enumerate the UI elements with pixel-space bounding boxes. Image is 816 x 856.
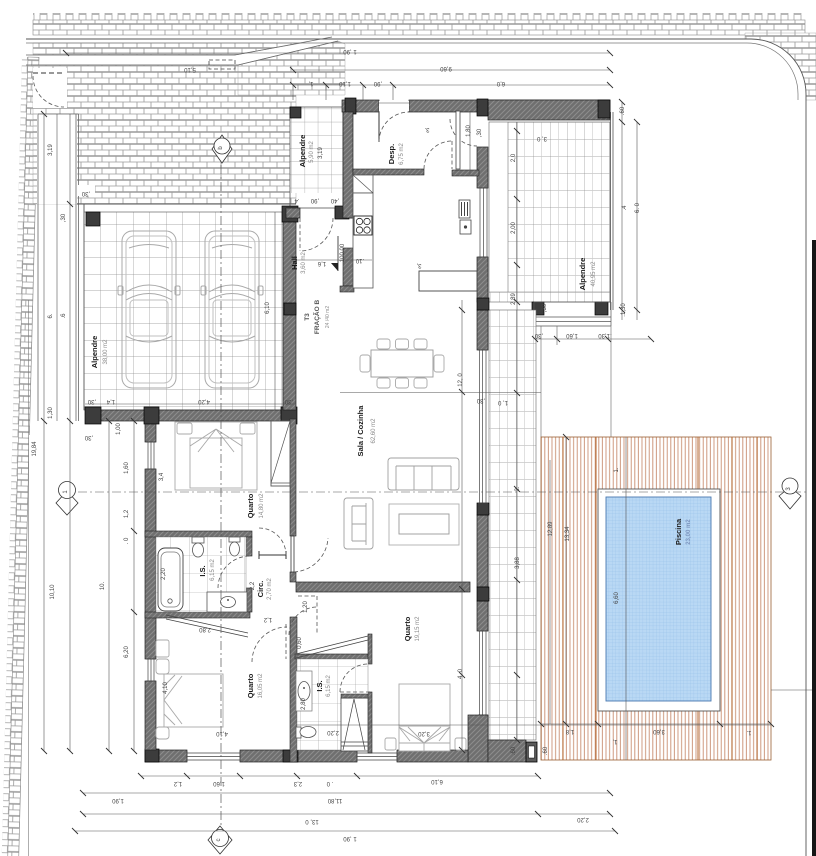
svg-text:1,10: 1,10 (339, 80, 351, 86)
svg-text:2,20: 2,20 (577, 816, 589, 822)
svg-text:10.: 10. (100, 581, 106, 590)
svg-text:9,60: 9,60 (440, 65, 452, 71)
svg-text:3,60: 3,60 (653, 728, 665, 734)
svg-text:4,10: 4,10 (216, 730, 228, 736)
svg-text:,30: ,30 (476, 397, 485, 403)
svg-text:5,10: 5,10 (184, 66, 196, 72)
svg-text:3.: 3. (424, 126, 429, 132)
svg-text:2,3: 2,3 (293, 780, 302, 786)
svg-text:16,05 m2: 16,05 m2 (258, 673, 264, 699)
svg-text:I.S.: I.S. (198, 565, 207, 576)
svg-text:1 ,90: 1 ,90 (343, 835, 357, 841)
svg-text:13,34: 13,34 (565, 526, 571, 542)
svg-text:12, 0: 12, 0 (458, 373, 464, 387)
svg-text:c: c (216, 839, 222, 842)
svg-text:1,: 1, (308, 80, 313, 86)
svg-text:1,90: 1,90 (112, 797, 124, 803)
svg-text:,90: ,90 (310, 197, 319, 203)
svg-text:Alpendre: Alpendre (90, 336, 99, 369)
svg-text:1,30: 1,30 (48, 407, 54, 419)
svg-text:3,60 m2: 3,60 m2 (301, 252, 307, 274)
svg-text:6,10: 6,10 (431, 778, 443, 784)
svg-text:10,10: 10,10 (50, 584, 56, 600)
svg-text:2,00: 2,00 (511, 222, 517, 234)
svg-text:2,20: 2,20 (327, 729, 339, 735)
svg-text:12,89: 12,89 (548, 521, 554, 537)
svg-text:6,15 m2: 6,15 m2 (210, 559, 216, 581)
svg-text:2,2: 2,2 (250, 581, 256, 590)
svg-text:,30: ,30 (534, 332, 543, 338)
svg-text:.10: .10 (355, 257, 364, 263)
svg-text:2,70 m2: 2,70 m2 (267, 578, 273, 600)
svg-text:Alpendre: Alpendre (298, 135, 307, 168)
svg-text:.6: .6 (61, 313, 67, 319)
svg-text:6. 0: 6. 0 (635, 202, 641, 213)
svg-text:.4: .4 (622, 205, 628, 211)
svg-text:1,00: 1,00 (116, 423, 122, 435)
svg-text:2,20: 2,20 (161, 568, 167, 580)
svg-text:1,60: 1,60 (566, 332, 578, 338)
svg-text:.1,30: .1,30 (621, 303, 627, 317)
svg-text:40,95 m2: 40,95 m2 (591, 261, 597, 287)
svg-text:.60: .60 (620, 106, 626, 115)
svg-text:,30: ,30 (542, 303, 548, 312)
svg-text:1,60: 1,60 (124, 462, 130, 474)
svg-text:19,15 m2: 19,15 m2 (415, 616, 421, 642)
svg-text:6,60: 6,60 (614, 592, 620, 604)
svg-text:Quarto: Quarto (246, 493, 255, 518)
svg-text:1,20: 1,20 (303, 601, 309, 613)
svg-text:I.S.: I.S. (315, 680, 324, 691)
svg-text:. 0: . 0 (124, 537, 130, 544)
svg-text:FRAÇÃO B: FRAÇÃO B (312, 300, 321, 335)
svg-text:23,00 m2: 23,00 m2 (686, 519, 692, 545)
svg-text:1,2: 1,2 (173, 780, 182, 786)
svg-text:1,2: 1,2 (263, 616, 272, 622)
svg-text:1,4: 1,4 (106, 398, 115, 404)
svg-text:1,60: 1,60 (213, 780, 225, 786)
svg-text:,30: ,30 (61, 213, 67, 222)
svg-text:Sala / Cozinha: Sala / Cozinha (356, 405, 365, 457)
svg-text:24 /40 m2: 24 /40 m2 (325, 306, 331, 328)
svg-text:6,10: 6,10 (265, 302, 271, 314)
svg-text:. 0: . 0 (326, 780, 333, 786)
svg-text:.60: .60 (511, 746, 517, 755)
svg-text:2,80: 2,80 (199, 626, 211, 632)
svg-text:.4: .4 (294, 197, 300, 203)
svg-text:2,80: 2,80 (301, 698, 307, 710)
svg-text:3,20: 3,20 (418, 730, 430, 736)
svg-text:,30: ,30 (84, 434, 93, 440)
svg-text:2,89: 2,89 (511, 293, 517, 305)
svg-text:0,60: 0,60 (297, 637, 303, 649)
svg-text:2,0: 2,0 (511, 153, 517, 162)
svg-text:3,: 3, (416, 262, 421, 268)
svg-text:6,0: 6,0 (496, 80, 505, 86)
svg-text:2.: 2. (515, 486, 521, 491)
svg-text:11,80: 11,80 (327, 797, 342, 803)
svg-text:,30: ,30 (81, 190, 90, 196)
svg-text:Alpendre: Alpendre (578, 258, 587, 291)
svg-text:,30: ,30 (477, 128, 483, 137)
svg-text:6,75 m2: 6,75 m2 (399, 143, 405, 165)
svg-text:T3: T3 (304, 313, 311, 321)
svg-text:Circ.: Circ. (256, 581, 265, 598)
svg-text:3,4: 3,4 (159, 472, 165, 481)
svg-text:19,84: 19,84 (32, 441, 38, 457)
svg-text:1.: 1. (746, 729, 751, 735)
svg-text:1,6: 1,6 (317, 260, 326, 266)
svg-text:6,20: 6,20 (124, 646, 130, 658)
svg-text:4,20: 4,20 (198, 398, 210, 404)
svg-text:,40: ,40 (330, 197, 339, 203)
svg-text:.1,30: .1,30 (598, 332, 612, 338)
svg-text:,30: ,30 (284, 398, 293, 404)
svg-text:,30: ,30 (87, 398, 96, 404)
svg-text:3,19: 3,19 (318, 147, 324, 159)
svg-text:1.: 1. (614, 467, 620, 472)
svg-text:6.: 6. (48, 313, 54, 318)
svg-text:1,8: 1,8 (565, 728, 574, 734)
svg-text:38,00 m2: 38,00 m2 (103, 339, 109, 365)
svg-text:14,80 m2: 14,80 m2 (259, 493, 265, 519)
svg-text:62,60 m2: 62,60 m2 (371, 418, 377, 444)
svg-text:Quarto: Quarto (403, 616, 412, 641)
svg-text:1,2: 1,2 (124, 509, 130, 518)
svg-text:3,19: 3,19 (48, 144, 54, 156)
svg-text:1, 0: 1, 0 (497, 399, 508, 405)
svg-text:1 ,90: 1 ,90 (343, 48, 357, 54)
svg-text:6,15 m2: 6,15 m2 (326, 675, 332, 697)
svg-text:5,90 m2: 5,90 m2 (309, 141, 315, 163)
svg-text:1,: 1, (612, 738, 617, 744)
svg-text:3, 0: 3, 0 (536, 135, 547, 141)
svg-text:100.00: 100.00 (340, 243, 346, 262)
svg-text:.60: .60 (543, 746, 549, 755)
svg-text:13, 0: 13, 0 (305, 818, 319, 824)
svg-text:Quarto: Quarto (246, 673, 255, 698)
svg-text:,90: ,90 (373, 80, 382, 86)
svg-text:4,10: 4,10 (163, 682, 169, 694)
svg-text:4, 0: 4, 0 (458, 668, 464, 679)
svg-text:3,88: 3,88 (515, 557, 521, 569)
svg-text:Piscina: Piscina (674, 518, 683, 545)
svg-text:Hall: Hall (290, 256, 299, 270)
svg-text:1,80: 1,80 (466, 125, 472, 137)
svg-text:Desp.: Desp. (387, 144, 396, 164)
